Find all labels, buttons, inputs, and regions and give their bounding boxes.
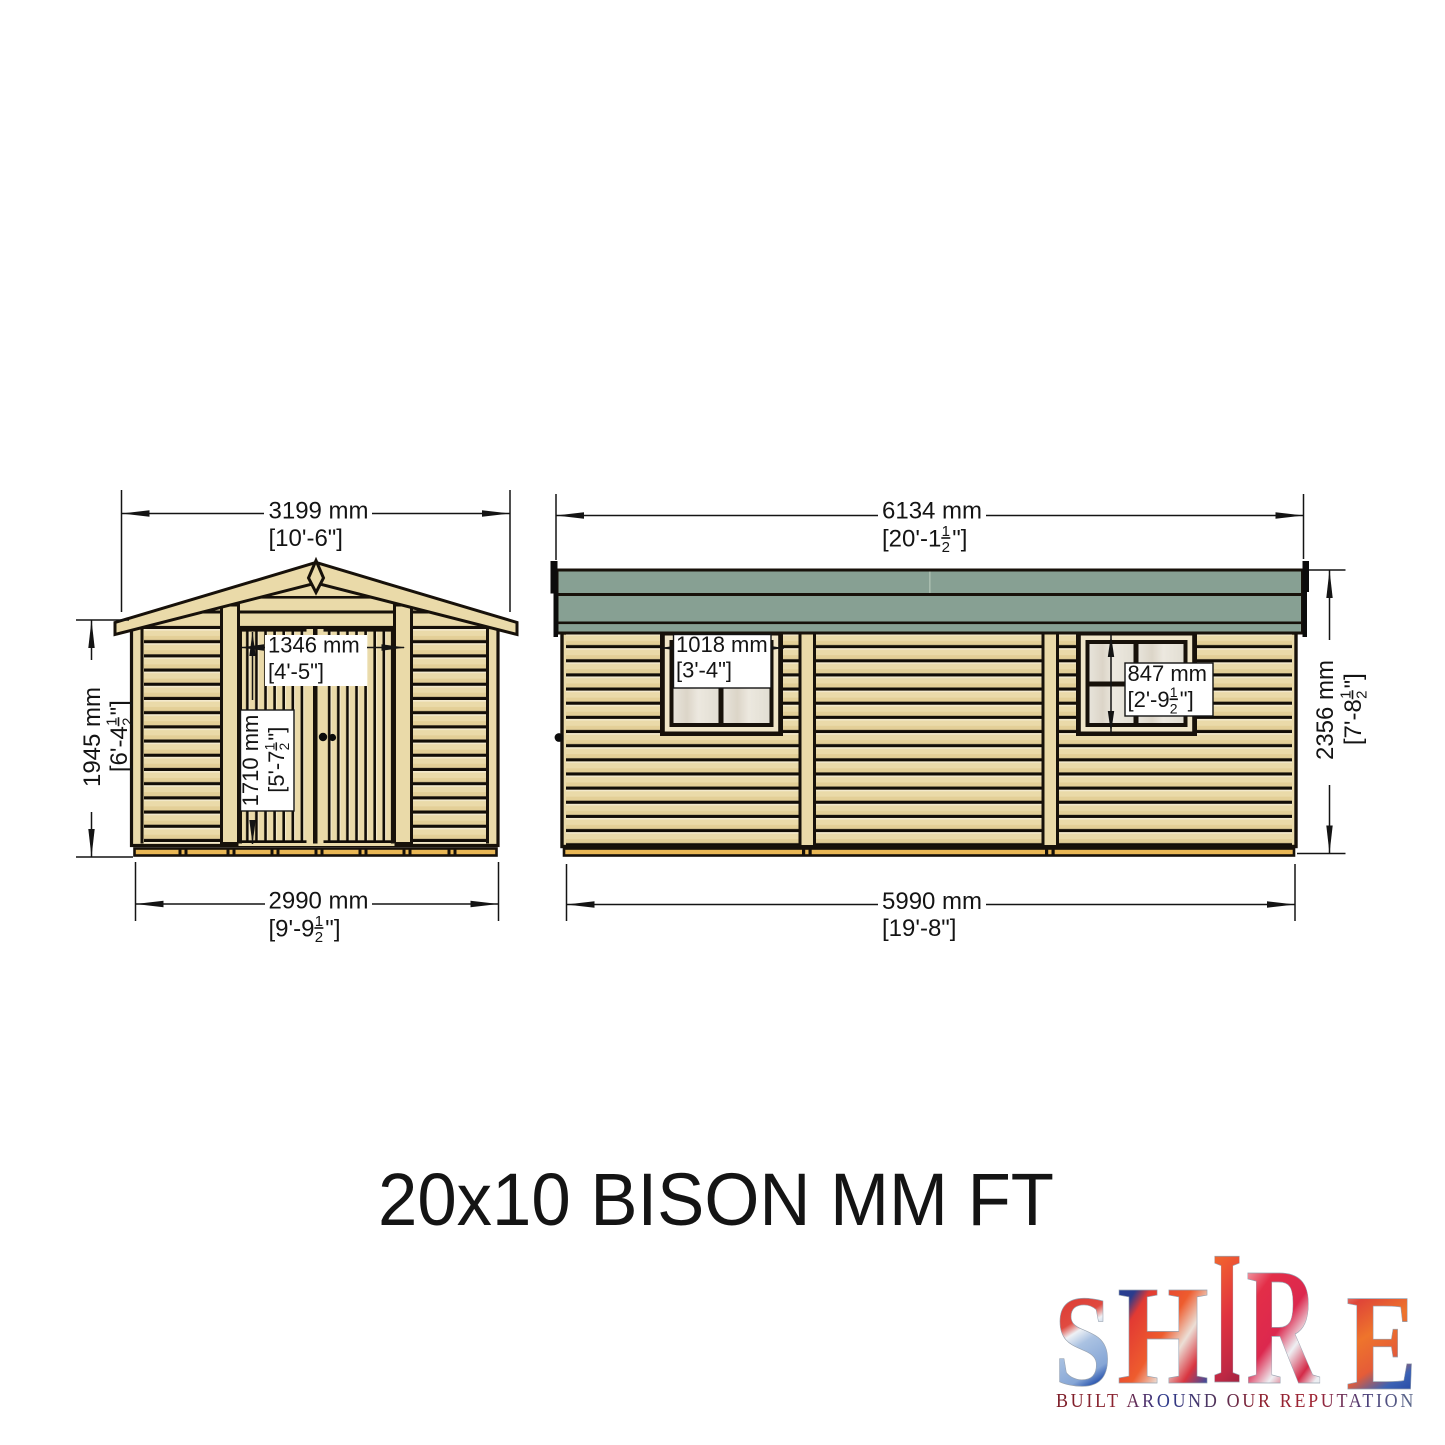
svg-text:3199 mm: 3199 mm	[269, 498, 369, 525]
svg-text:[3'-4"]: [3'-4"]	[676, 658, 732, 683]
svg-text:847 mm: 847 mm	[1128, 661, 1207, 686]
svg-text:2: 2	[277, 743, 292, 751]
svg-text:[10'-6"]: [10'-6"]	[269, 525, 343, 552]
svg-text:2: 2	[1170, 700, 1178, 716]
svg-text:[20'-1: [20'-1	[882, 526, 941, 553]
svg-text:1346 mm: 1346 mm	[268, 633, 360, 658]
svg-text:"]: "]	[325, 916, 340, 943]
svg-text:5990 mm: 5990 mm	[882, 888, 982, 915]
svg-text:1945 mm: 1945 mm	[79, 687, 106, 787]
svg-text:1710 mm: 1710 mm	[238, 715, 263, 807]
svg-text:[7'-8: [7'-8	[1340, 699, 1367, 745]
svg-text:6134 mm: 6134 mm	[882, 498, 982, 525]
svg-text:1: 1	[1170, 684, 1178, 700]
svg-text:2: 2	[1354, 691, 1371, 699]
svg-text:"]: "]	[106, 700, 133, 715]
svg-text:[5'-7: [5'-7	[264, 751, 289, 793]
svg-text:[19'-8"]: [19'-8"]	[882, 915, 956, 942]
svg-text:2: 2	[315, 929, 323, 946]
svg-text:2356 mm: 2356 mm	[1312, 660, 1339, 760]
svg-text:1: 1	[262, 743, 277, 751]
svg-text:"]: "]	[952, 526, 967, 553]
svg-text:"]: "]	[1340, 673, 1367, 688]
svg-text:[9'-9: [9'-9	[269, 916, 315, 943]
svg-text:"]: "]	[1180, 687, 1194, 712]
svg-text:2990 mm: 2990 mm	[269, 888, 369, 915]
svg-text:[2'-9: [2'-9	[1128, 687, 1170, 712]
svg-text:"]: "]	[264, 727, 289, 741]
svg-text:1018 mm: 1018 mm	[676, 632, 768, 657]
svg-text:[4'-5"]: [4'-5"]	[268, 659, 324, 684]
svg-text:2: 2	[120, 718, 137, 726]
svg-text:2: 2	[942, 539, 950, 556]
svg-text:BUILT AROUND OUR REPUTATION: BUILT AROUND OUR REPUTATION	[1056, 1390, 1416, 1412]
svg-text:[6'-4: [6'-4	[106, 726, 133, 772]
svg-text:20x10 BISON MM FT: 20x10 BISON MM FT	[378, 1158, 1054, 1241]
